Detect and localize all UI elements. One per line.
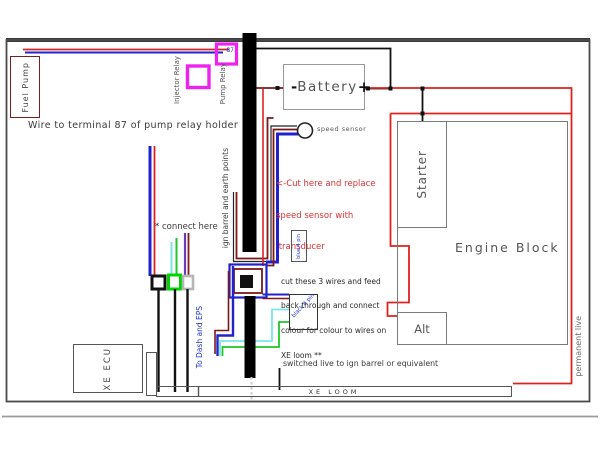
- switched-live-note: switched live to ign barrel or equivalen…: [283, 359, 438, 368]
- lower-loom-bar: [245, 296, 256, 378]
- wiring-diagram: Fuel Pump 87 Injector Relay Pump Relay W…: [0, 0, 600, 450]
- cut3-line1: cut these 3 wires and feed: [281, 278, 386, 286]
- xe-loom-label: XE LOOM: [309, 388, 360, 396]
- junction-dot: [389, 87, 393, 91]
- fuel-pump-label: Fuel Pump: [21, 62, 30, 113]
- starter-label: Starter: [415, 150, 429, 199]
- nest-core: [240, 275, 253, 288]
- connector-black: [152, 276, 165, 289]
- injector-relay-label: Injector Relay: [173, 56, 181, 104]
- speed-sensor: [298, 123, 313, 138]
- blue-plug-box: blue 4 pin: [291, 230, 307, 262]
- relay-87-label: 87: [219, 47, 234, 54]
- starter-box: Starter: [397, 121, 447, 228]
- xe-ecu-box: XE ECU: [73, 344, 143, 393]
- speed-sensor-label: speed sensor: [317, 125, 366, 133]
- engine-block-label: Engine Block: [455, 240, 560, 255]
- blue-plug-label: blue 4 pin: [296, 234, 302, 259]
- connect-here-note: * connect here: [155, 222, 218, 232]
- black-plug-label: black 4 pin: [291, 293, 316, 319]
- upper-loom-bar: [243, 33, 257, 252]
- battery-label: Battery: [297, 79, 357, 95]
- connector-green: [169, 275, 181, 289]
- junction-dot: [421, 87, 425, 91]
- ign-barrel-label: ign barrel and earth points: [221, 148, 230, 248]
- junction-dot: [421, 112, 425, 116]
- junction-dot: [276, 86, 280, 90]
- connector-white: [183, 276, 193, 289]
- cut-note-line1: <-Cut here and replace: [276, 179, 376, 190]
- permanent-live-label: permanent live: [574, 316, 583, 377]
- injector-relay-box: [188, 66, 210, 88]
- cut-note-line2: speed sensor with: [276, 211, 376, 222]
- fuel-pump-box: Fuel Pump: [10, 56, 40, 118]
- alt-label: Alt: [414, 322, 430, 336]
- pump-relay-label: Pump Relay: [219, 63, 227, 104]
- alt-box: Alt: [397, 312, 447, 345]
- battery-box: - Battery +: [283, 64, 365, 110]
- to-dash-label: To Dash and EPS: [195, 306, 204, 368]
- terminal87-note: Wire to terminal 87 of pump relay holder: [28, 120, 238, 131]
- ecu-loom-leads: [159, 289, 188, 392]
- xe-ecu-label: XE ECU: [103, 347, 113, 390]
- xe-loom-bar: XE LOOM: [156, 386, 512, 397]
- black-plug-box: black 4 pin: [289, 294, 318, 330]
- battery-plus: +: [358, 78, 371, 96]
